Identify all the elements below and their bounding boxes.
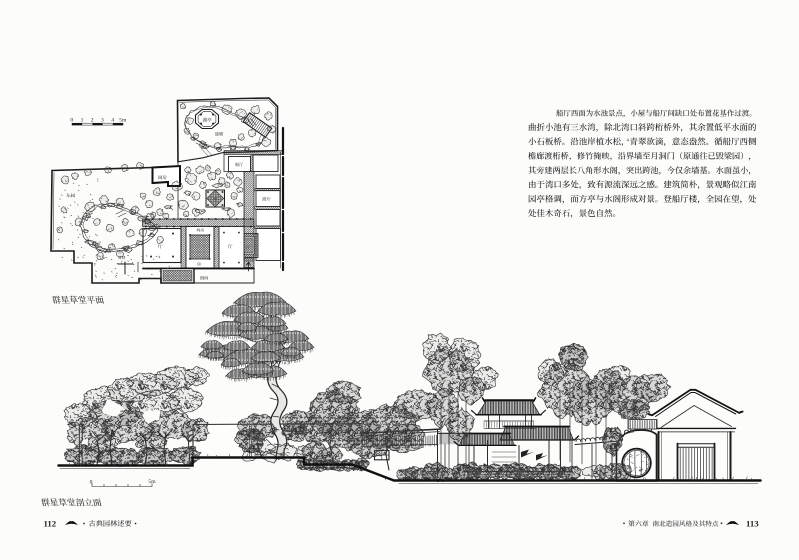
svg-text:112: 112 — [44, 518, 57, 528]
svg-text:2: 2 — [91, 117, 94, 123]
svg-text:5m: 5m — [119, 117, 127, 123]
svg-text:113: 113 — [746, 519, 759, 529]
svg-text:3: 3 — [101, 117, 104, 123]
svg-text:4: 4 — [111, 117, 114, 123]
svg-text:0: 0 — [70, 117, 73, 123]
svg-text:1: 1 — [81, 117, 84, 123]
svg-text:5m: 5m — [148, 479, 156, 485]
